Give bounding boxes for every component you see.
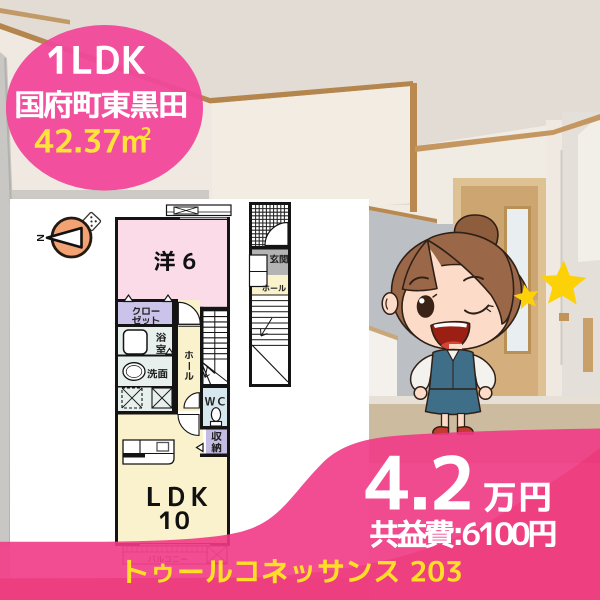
svg-text:N: N xyxy=(35,234,47,242)
